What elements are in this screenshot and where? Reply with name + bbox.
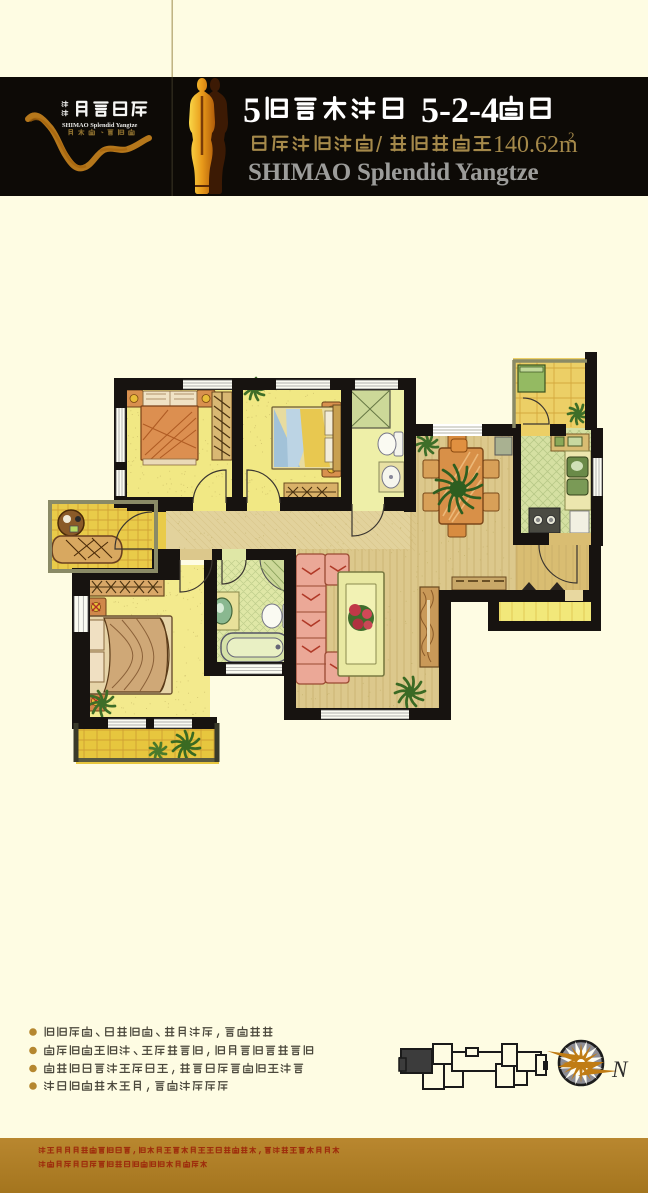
svg-text:N: N xyxy=(611,1057,629,1082)
svg-text:SHIMAO Splendid Yangtze: SHIMAO Splendid Yangtze xyxy=(62,122,138,129)
svg-text:/: / xyxy=(376,132,383,157)
svg-text:5: 5 xyxy=(243,90,261,130)
svg-text:2: 2 xyxy=(568,129,575,144)
svg-text:SHIMAO Splendid Yangtze: SHIMAO Splendid Yangtze xyxy=(248,159,538,186)
svg-text:5-2-4: 5-2-4 xyxy=(421,90,499,130)
svg-text:140.62m: 140.62m xyxy=(493,132,578,158)
